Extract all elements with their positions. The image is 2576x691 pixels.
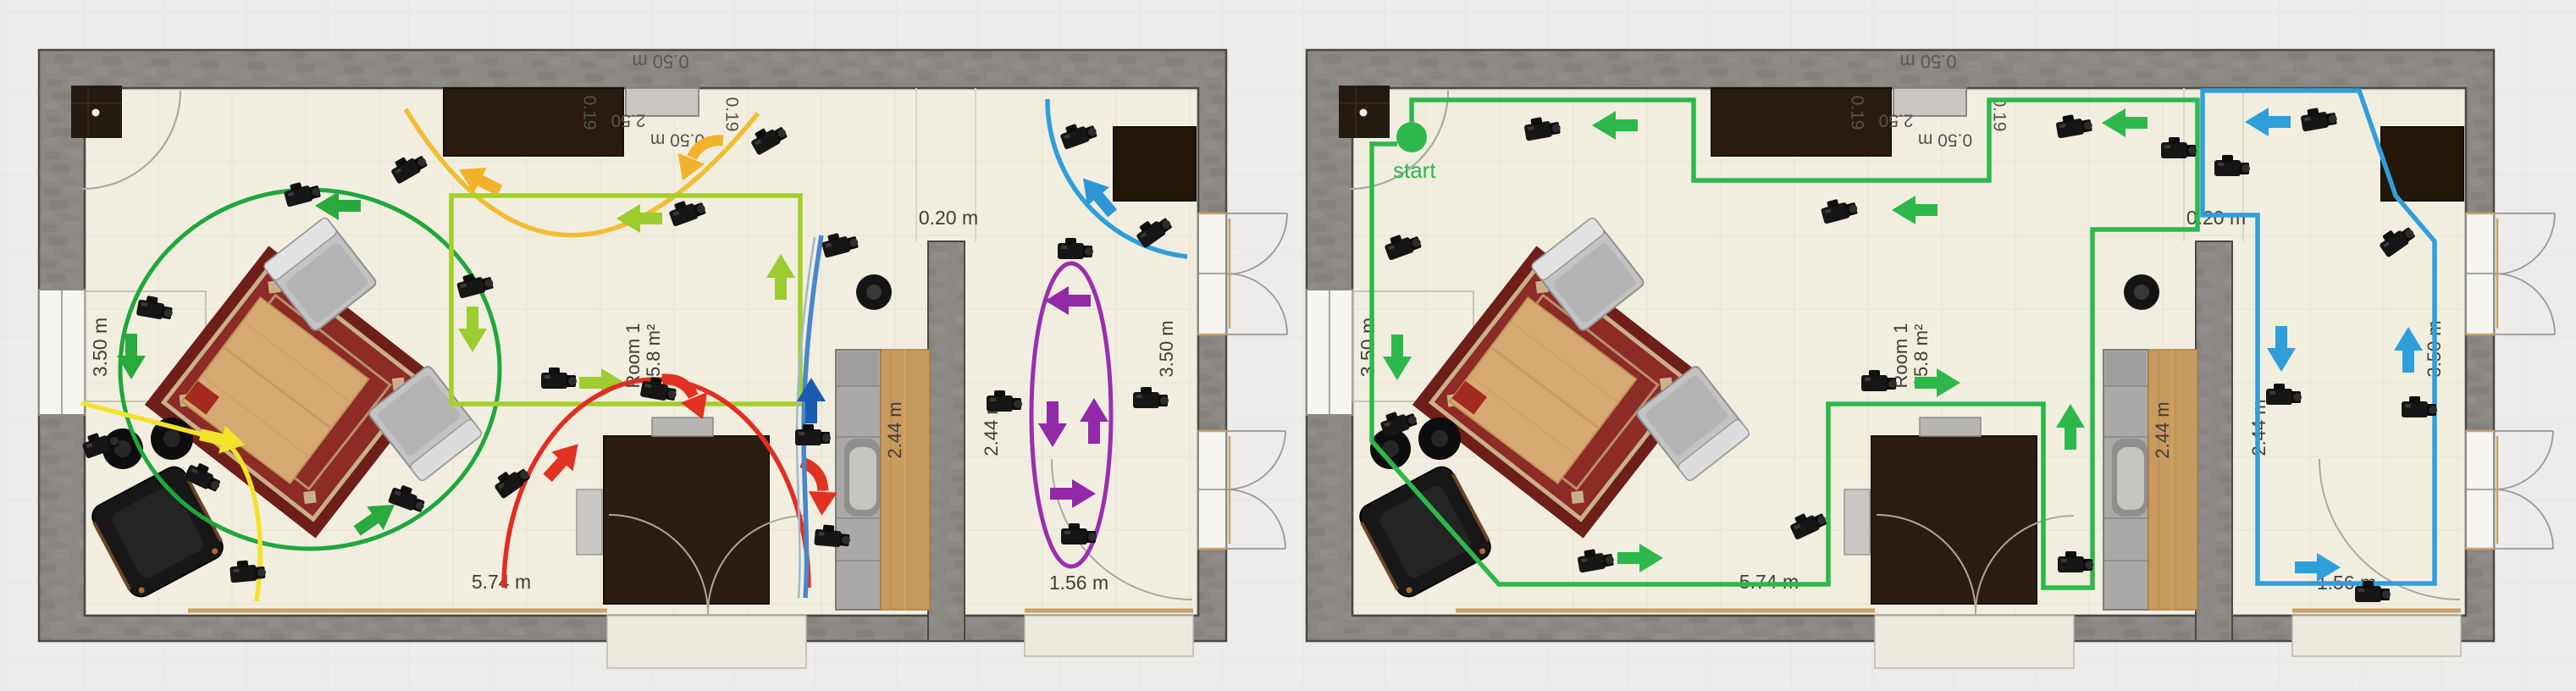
svg-text:3.50 m: 3.50 m xyxy=(89,318,111,377)
svg-text:0.19: 0.19 xyxy=(1847,96,1866,130)
svg-text:2.44 m: 2.44 m xyxy=(2152,401,2173,458)
svg-text:0.50 m: 0.50 m xyxy=(1918,130,1972,149)
svg-text:5.74 m: 5.74 m xyxy=(1739,571,1799,593)
svg-text:0.20 m: 0.20 m xyxy=(919,207,978,229)
svg-text:5.74 m: 5.74 m xyxy=(472,571,531,593)
svg-text:1.56 m: 1.56 m xyxy=(1049,572,1108,594)
svg-text:3.50 m: 3.50 m xyxy=(1357,318,1379,377)
svg-text:0.50 m: 0.50 m xyxy=(1899,51,1956,72)
svg-text:3.50 m: 3.50 m xyxy=(1156,320,1177,377)
svg-text:2.44 m: 2.44 m xyxy=(884,401,905,458)
svg-text:2.50: 2.50 xyxy=(611,110,646,130)
svg-text:0.50 m: 0.50 m xyxy=(632,51,688,72)
svg-text:2.50: 2.50 xyxy=(1879,110,1914,130)
svg-text:start: start xyxy=(1393,158,1436,183)
svg-text:0.19: 0.19 xyxy=(579,96,599,130)
svg-text:0.19: 0.19 xyxy=(721,97,741,132)
